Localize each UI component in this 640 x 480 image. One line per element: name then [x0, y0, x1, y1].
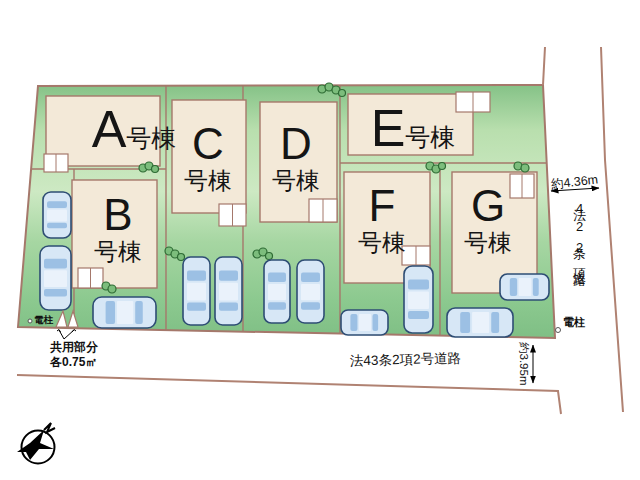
building-letter: B — [94, 194, 142, 236]
parked-car-icon — [43, 192, 71, 238]
parked-car-icon — [264, 260, 290, 323]
building-letter: E — [371, 105, 406, 152]
parked-car-icon — [447, 308, 513, 337]
common-area-line2: 各0.75㎡ — [50, 355, 98, 370]
building-letter: F — [358, 185, 406, 227]
utility-pole-right-dot — [556, 328, 561, 333]
tree-icon — [266, 253, 273, 260]
parked-car-icon — [297, 260, 324, 323]
building-suffix: 号棟 — [272, 169, 320, 193]
parked-car-icon — [183, 257, 210, 325]
utility-pole-left-dot — [28, 319, 32, 323]
tree-icon — [339, 90, 346, 97]
tree-icon — [152, 166, 159, 173]
building-suffix: 号棟 — [184, 169, 232, 193]
building-letter: C — [184, 123, 232, 165]
parked-car-icon — [341, 310, 388, 335]
tree-icon — [178, 254, 185, 261]
tree-icon — [439, 163, 446, 170]
road-name-right-label: 法42条2項道路 — [570, 198, 588, 267]
building-label-g: G号棟 — [464, 185, 512, 255]
building-suffix: 号棟 — [358, 231, 406, 255]
parked-car-icon — [40, 246, 71, 310]
building-suffix: 号棟 — [405, 125, 455, 150]
common-area-line1: 共用部分 — [50, 340, 98, 355]
parked-car-icon — [93, 297, 156, 328]
utility-pole-left-label: 電柱 — [34, 314, 53, 327]
tree-icon — [521, 164, 529, 172]
building-suffix: 号棟 — [94, 240, 142, 264]
building-letter: A — [92, 106, 127, 153]
building-letter: G — [464, 185, 512, 227]
building-label-a: A号棟 — [92, 106, 177, 153]
road-width-bottom-label: 約3.95m — [516, 342, 531, 385]
tree-icon — [108, 285, 116, 293]
road-name-bottom-label: 法43条2項2号道路 — [350, 350, 461, 371]
building-label-d: D号棟 — [272, 123, 320, 193]
north-compass-icon — [17, 423, 55, 464]
parked-car-icon — [215, 257, 242, 325]
building-letter: D — [272, 123, 320, 165]
parked-car-icon — [500, 274, 549, 300]
building-label-b: B号棟 — [94, 194, 142, 264]
utility-pole-right-label: 電柱 — [563, 315, 585, 330]
common-area-label: 共用部分 各0.75㎡ — [50, 340, 98, 370]
building-label-c: C号棟 — [184, 123, 232, 193]
building-label-e: E号棟 — [371, 105, 456, 152]
building-suffix: 号棟 — [126, 126, 176, 151]
parked-car-icon — [404, 266, 433, 333]
building-label-f: F号棟 — [358, 185, 406, 255]
site-plan-canvas: A号棟B号棟C号棟D号棟E号棟F号棟G号棟 約4.36m 法42条2項道路 法4… — [0, 0, 640, 480]
building-suffix: 号棟 — [464, 231, 512, 255]
